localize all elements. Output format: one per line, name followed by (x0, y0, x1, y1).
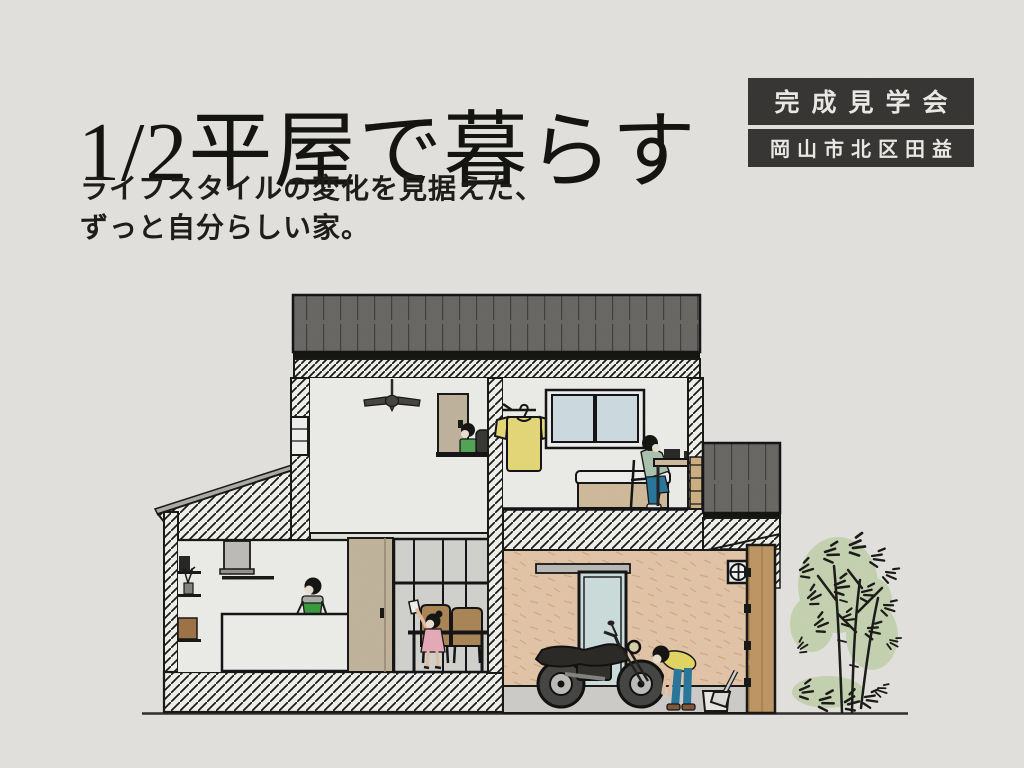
poster-canvas: 1/2平屋で暮らす ライフスタイルの変化を見据えた、 ずっと自分らしい家。 完成… (0, 0, 1024, 768)
paper-texture (0, 0, 1024, 768)
house-cross-section-illustration (0, 0, 1024, 768)
